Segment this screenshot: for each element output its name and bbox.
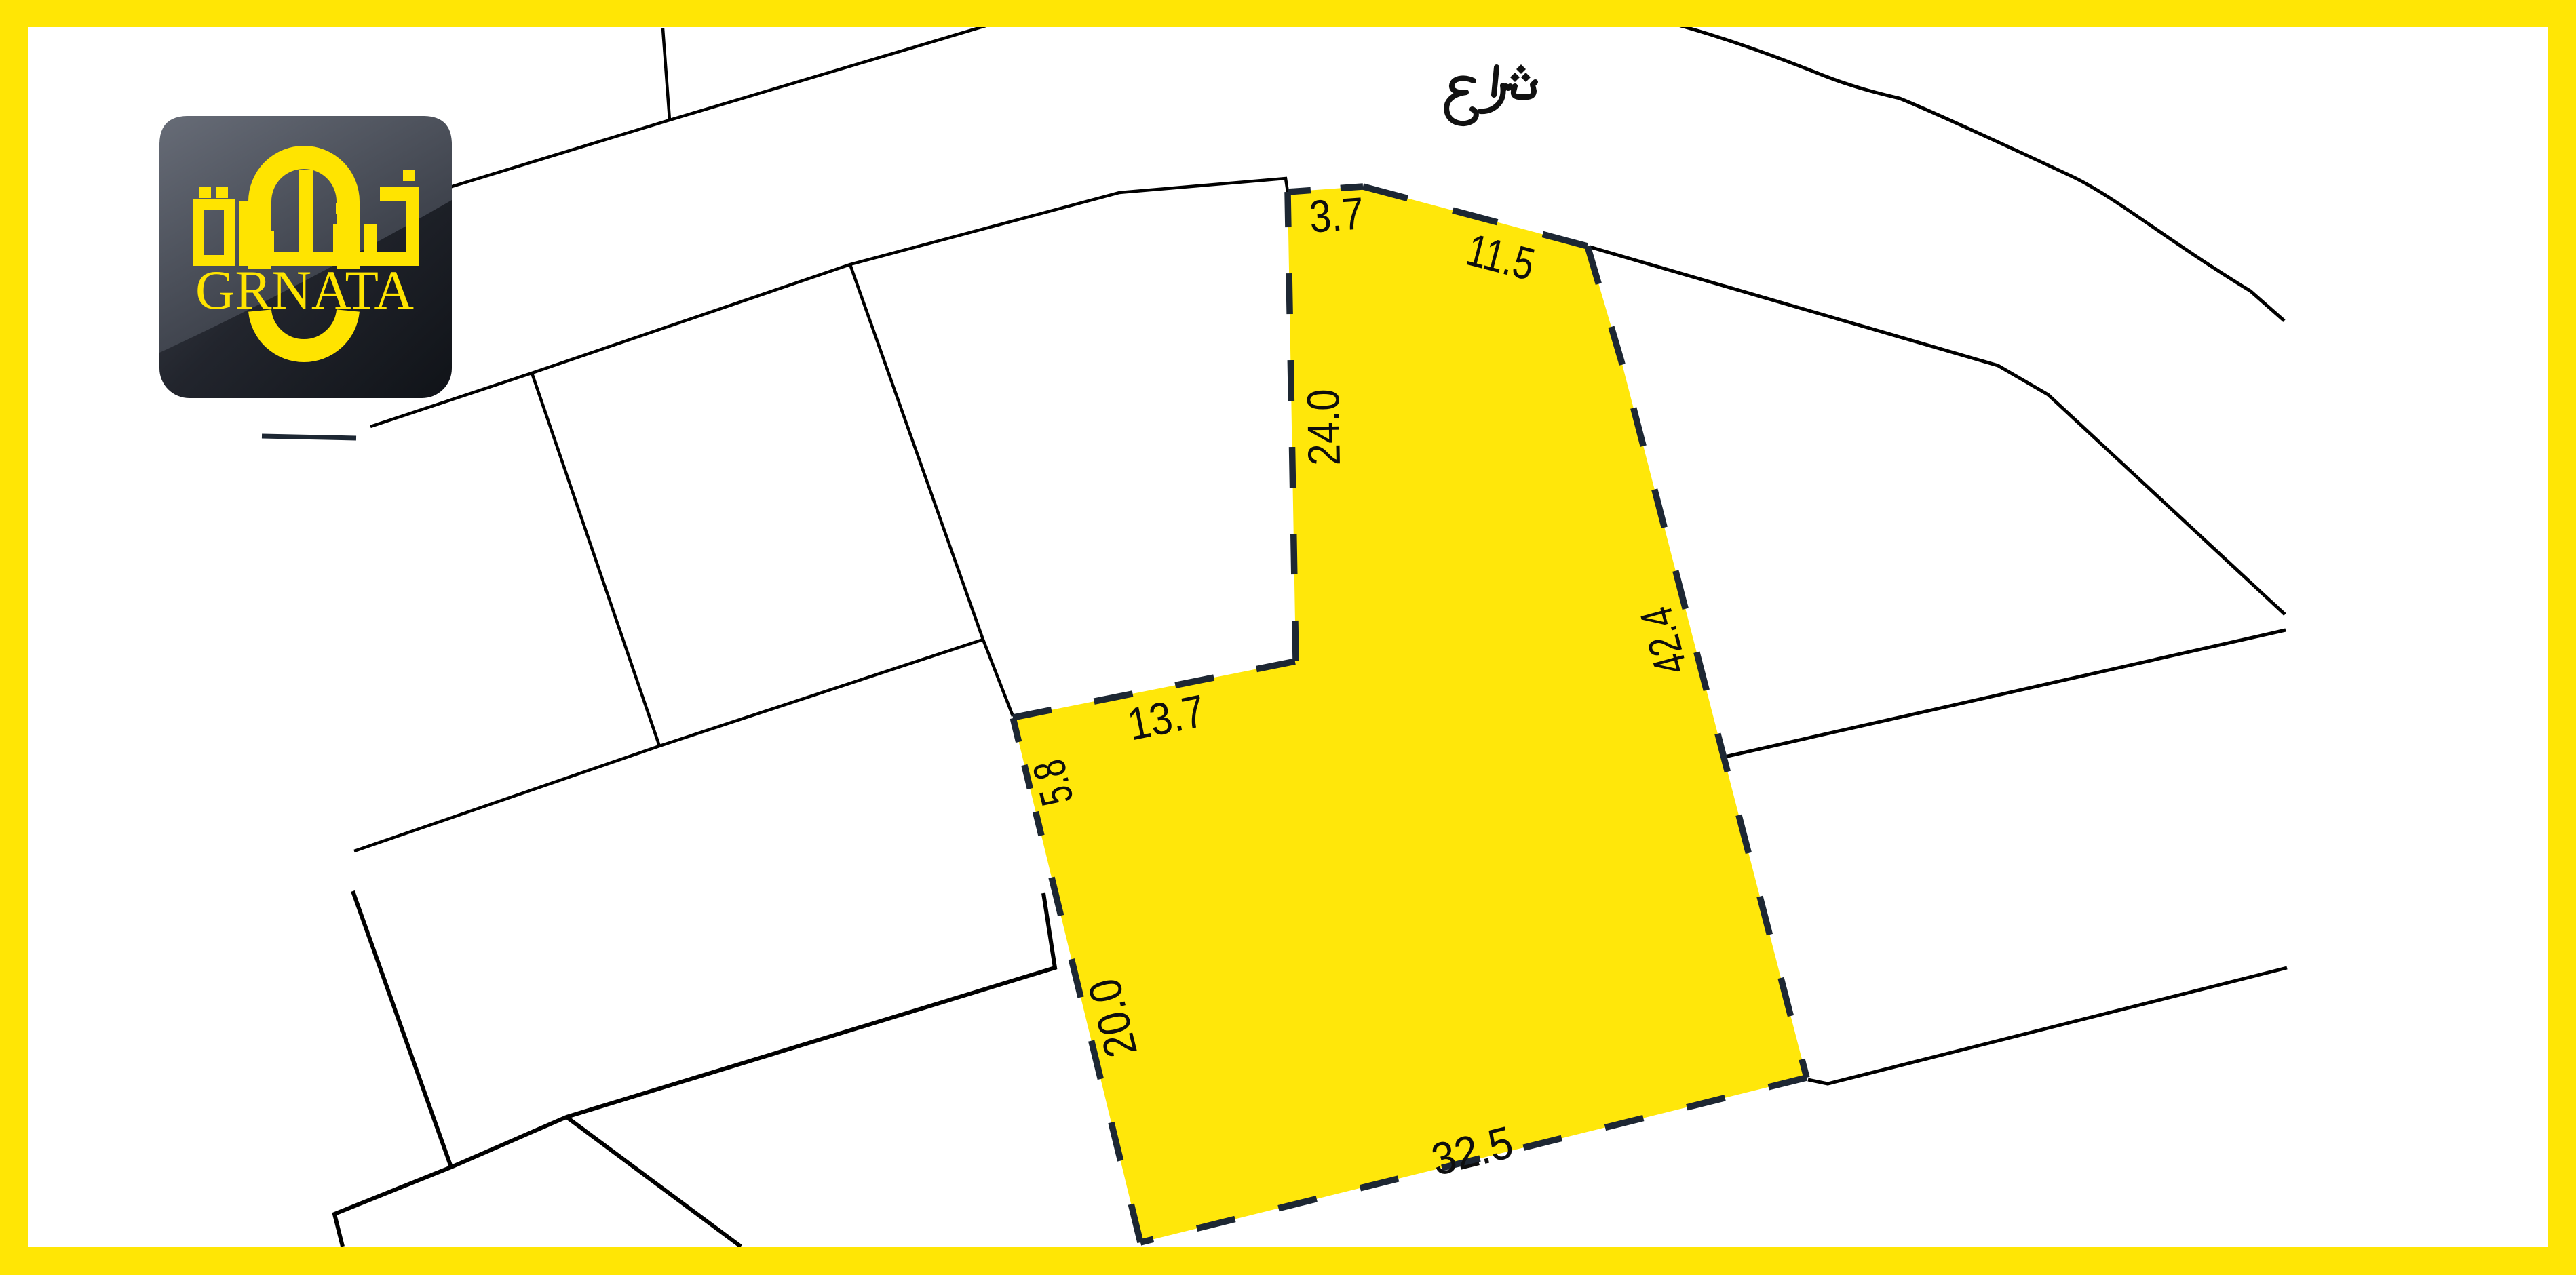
svg-text:24.0: 24.0	[1298, 389, 1350, 466]
svg-text:3.7: 3.7	[1308, 188, 1366, 242]
svg-text:GRNATA: GRNATA	[195, 259, 414, 321]
